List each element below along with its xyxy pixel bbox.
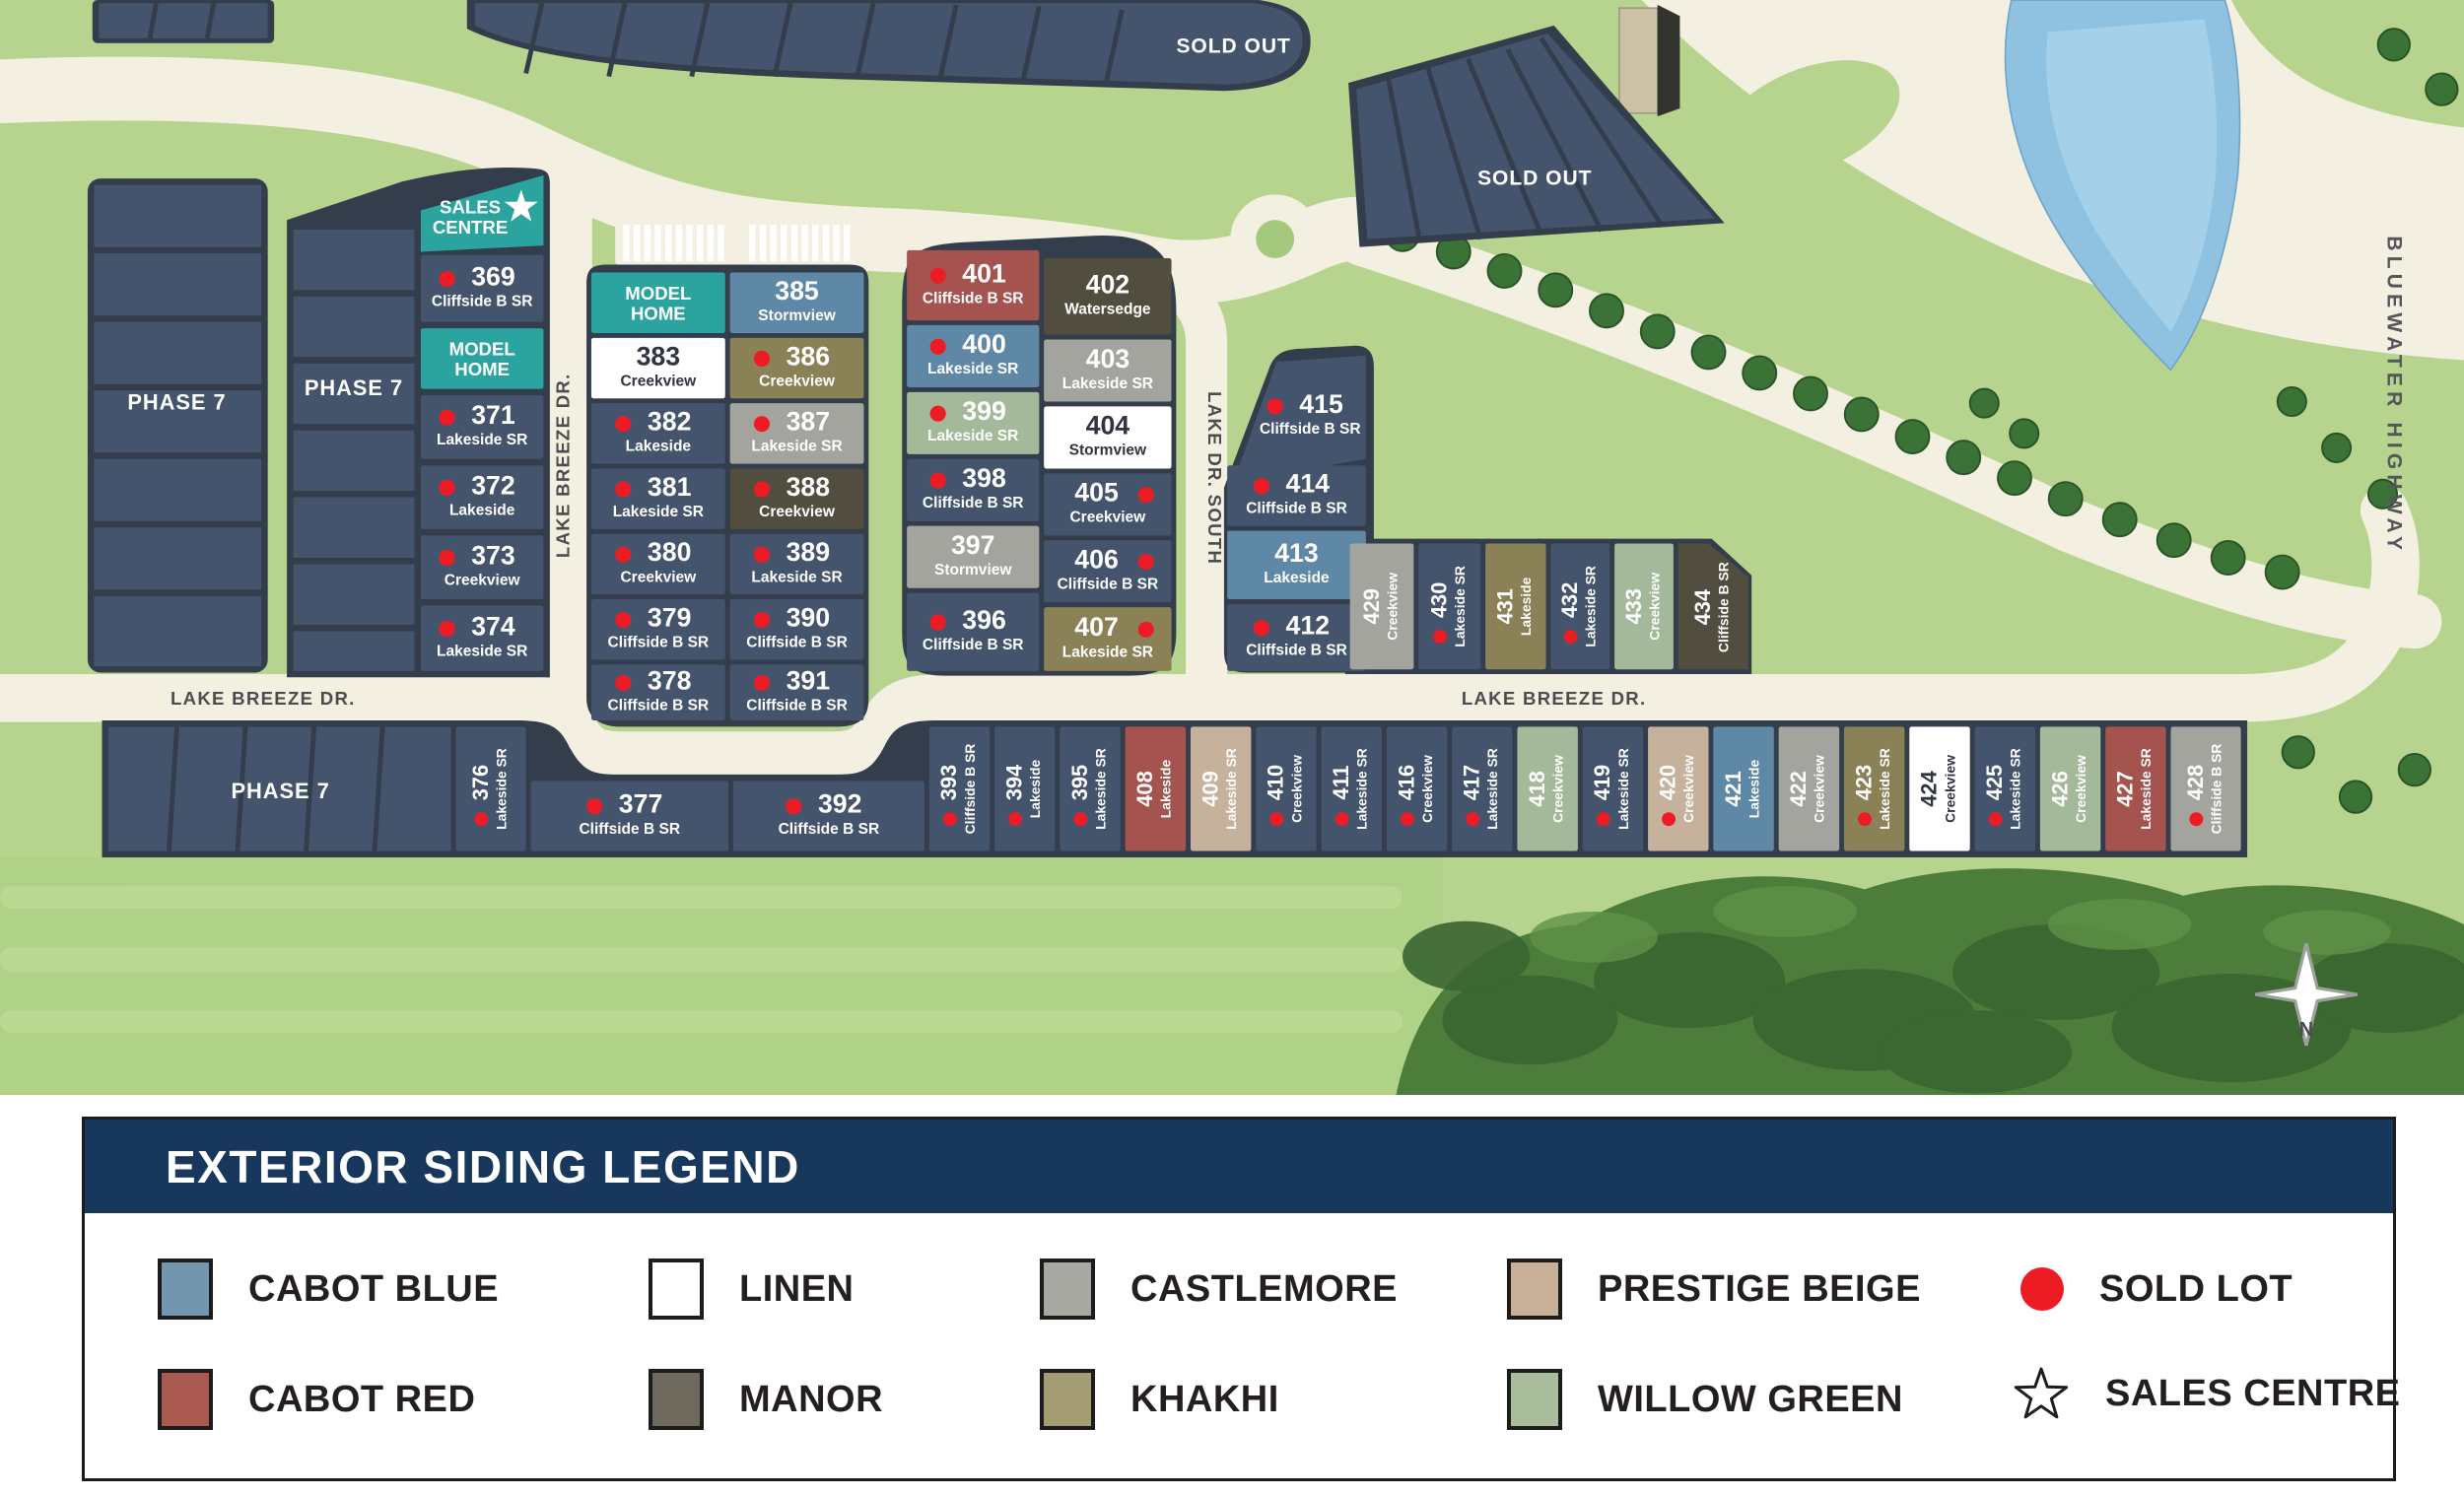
- lot-number: 371: [471, 400, 515, 430]
- lot-number: 390: [787, 603, 831, 633]
- lot-model: Lakeside SR: [2008, 748, 2023, 830]
- phase7-label-left: PHASE 7: [127, 390, 226, 415]
- lot-number: 422: [1786, 771, 1811, 806]
- lot-model: Stormview: [758, 307, 836, 324]
- lot-number: 378: [648, 665, 692, 695]
- lot-model: Lakeside SR: [613, 504, 704, 520]
- lot-model: Lakeside: [1264, 570, 1330, 586]
- lot-number: 373: [471, 540, 515, 570]
- special-label-line1: MODEL: [449, 339, 515, 360]
- sold-dot: [2189, 812, 2203, 826]
- lot-model: Lakeside SR: [1223, 748, 1239, 830]
- lot-number: 425: [1982, 765, 2007, 800]
- lot-374[interactable]: 374Lakeside SR: [421, 606, 544, 671]
- legend-label: WILLOW GREEN: [1598, 1379, 1903, 1421]
- lot-model: Creekview: [1288, 755, 1304, 823]
- lot-number: 429: [1359, 588, 1384, 624]
- cabot-blue-swatch: [158, 1259, 213, 1320]
- special-label-line1: MODEL: [625, 283, 691, 304]
- lot-model: Lakeside SR: [1877, 748, 1892, 830]
- legend-label: MANOR: [739, 1379, 883, 1421]
- lot-number: 428: [2183, 765, 2208, 800]
- lot-393[interactable]: 393Cliffside B SR: [929, 726, 990, 851]
- lot-369[interactable]: 369Cliffside B SR: [421, 255, 544, 322]
- lot-392[interactable]: 392Cliffside B SR: [733, 781, 924, 851]
- lot-model: Creekview: [759, 373, 836, 389]
- sold-dot: [1008, 812, 1022, 826]
- lot-number: 395: [1067, 765, 1092, 800]
- sold-dot: [440, 410, 455, 426]
- roundabout: [1230, 194, 1320, 284]
- lot-model: Cliffside B SR: [1260, 421, 1361, 438]
- lot-373[interactable]: 373Creekview: [421, 535, 544, 599]
- lot-model: Lakeside SR: [751, 439, 842, 455]
- sold-dot: [586, 798, 602, 814]
- lot-396[interactable]: 396Cliffside B SR: [907, 593, 1039, 671]
- legend-item-linen: LINEN: [649, 1257, 855, 1322]
- manor-swatch: [649, 1369, 704, 1430]
- sold-dot: [1254, 478, 1269, 494]
- willow-green-swatch: [1507, 1369, 1562, 1430]
- lot-model: Cliffside B SR: [579, 821, 680, 838]
- sold-dot: [1267, 398, 1283, 414]
- lot-model: Cliffside B SR: [779, 821, 880, 838]
- lot-model: Creekview: [620, 373, 697, 389]
- legend-title: EXTERIOR SIDING LEGEND: [85, 1120, 2393, 1213]
- lot-number: 409: [1198, 771, 1222, 806]
- lot-390[interactable]: 390Cliffside B SR: [730, 599, 864, 659]
- lot-389[interactable]: 389Lakeside SR: [730, 534, 864, 594]
- sold-dot: [1138, 622, 1154, 638]
- lot-number: 398: [962, 463, 1006, 493]
- sold-dot: [1269, 812, 1283, 826]
- sold-dot: [1858, 812, 1872, 826]
- sold-dot: [754, 416, 770, 432]
- lot-model: Watersedge: [1064, 302, 1151, 318]
- lot-model: Cliffside B SR: [1246, 501, 1347, 517]
- lot-number: 420: [1656, 765, 1680, 800]
- lot-number: 401: [962, 258, 1006, 288]
- lot-422[interactable]: 422Creekview: [1779, 726, 1839, 851]
- lot-408[interactable]: 408Lakeside: [1126, 726, 1186, 851]
- special-label-line2: HOME: [454, 359, 510, 379]
- exterior-siding-legend: EXTERIOR SIDING LEGEND CABOT BLUE CABOT …: [82, 1117, 2396, 1481]
- lot-model: Cliffside B SR: [1058, 577, 1159, 593]
- lot-model: Lakeside: [1158, 759, 1174, 818]
- sold-dot: [930, 472, 946, 488]
- sold-dot: [1662, 812, 1676, 826]
- sold-dot: [754, 547, 770, 563]
- sold-dot: [1433, 630, 1447, 644]
- lot-model: Creekview: [1942, 755, 1957, 823]
- lot-number: 383: [637, 341, 681, 371]
- lot-number: 411: [1329, 765, 1353, 799]
- lot-419[interactable]: 419Lakeside SR: [1583, 726, 1643, 851]
- sold-dot: [943, 812, 957, 826]
- sold-dot: [1989, 812, 2003, 826]
- lot-379[interactable]: 379Cliffside B SR: [591, 599, 725, 659]
- lot-number: 385: [775, 276, 819, 306]
- legend-item-cabot-red: CABOT RED: [158, 1367, 475, 1432]
- lot-number: 427: [2113, 771, 2138, 806]
- sold-dot: [930, 406, 946, 422]
- legend-item-castlemore: CASTLEMORE: [1040, 1257, 1398, 1322]
- map-model-home[interactable]: MODELHOME: [421, 328, 544, 388]
- lot-model: Creekview: [620, 569, 697, 585]
- lot-number: 392: [818, 789, 862, 819]
- lot-number: 372: [471, 470, 515, 500]
- linen-swatch: [649, 1259, 704, 1320]
- lot-371[interactable]: 371Lakeside SR: [421, 395, 544, 459]
- lot-412[interactable]: 412Cliffside B SR: [1227, 604, 1366, 671]
- sold-dot: [754, 612, 770, 628]
- legend-label: SALES CENTRE: [2105, 1373, 2400, 1415]
- sold-dot: [615, 675, 631, 691]
- lot-number: 382: [648, 407, 692, 437]
- lot-425[interactable]: 425Lakeside SR: [1975, 726, 2035, 851]
- lot-414[interactable]: 414Cliffside B SR: [1227, 465, 1366, 525]
- lot-number: 374: [471, 611, 515, 641]
- lot-model: Lakeside SR: [1583, 566, 1599, 647]
- lot-model: Lakeside SR: [1092, 748, 1108, 830]
- lot-number: 376: [468, 765, 493, 800]
- lot-number: 415: [1299, 389, 1343, 419]
- sold-dot: [440, 621, 455, 637]
- street-label-lake-breeze-vertical: LAKE BREEZE DR.: [552, 373, 573, 558]
- lot-model: Creekview: [1812, 755, 1827, 823]
- lot-424[interactable]: 424Creekview: [1909, 726, 1969, 851]
- lot-model: Lakeside SR: [1062, 375, 1153, 392]
- sold-out-label-1: SOLD OUT: [1176, 34, 1290, 57]
- lot-model: Lakeside SR: [751, 569, 842, 585]
- lot-404[interactable]: 404Stormview: [1044, 406, 1171, 468]
- lot-395[interactable]: 395Lakeside SR: [1060, 726, 1120, 851]
- lot-number: 404: [1086, 411, 1130, 441]
- lot-model: Lakeside SR: [927, 428, 1018, 444]
- lot-number: 419: [1590, 765, 1614, 800]
- lot-number: 430: [1426, 582, 1451, 618]
- site-plan-page: SOLD OUT SOLD OUT SALESCE: [0, 0, 2464, 1497]
- lot-model: Cliffside B SR: [923, 495, 1024, 511]
- lot-model: Cliffside B SR: [923, 290, 1024, 306]
- sold-dot: [1254, 620, 1269, 636]
- lot-model: Lakeside SR: [1354, 748, 1370, 830]
- lot-number: 403: [1086, 344, 1130, 374]
- lot-model: Lakeside SR: [437, 643, 527, 659]
- field: [0, 857, 1442, 1095]
- lot-number: 396: [962, 605, 1006, 635]
- cabot-red-swatch: [158, 1369, 213, 1430]
- lot-number: 393: [936, 765, 961, 800]
- lot-405[interactable]: 405Creekview: [1044, 473, 1171, 535]
- lot-model: Creekview: [1384, 573, 1400, 641]
- lot-413[interactable]: 413Lakeside: [1227, 531, 1366, 600]
- lot-number: 388: [787, 472, 831, 502]
- lot-382[interactable]: 382Lakeside: [591, 403, 725, 463]
- lot-433[interactable]: 433Creekview: [1614, 543, 1674, 669]
- lot-number: 400: [962, 329, 1006, 359]
- lot-model: Cliffside B SR: [432, 294, 533, 310]
- lot-model: Cliffside B SR: [962, 744, 978, 835]
- lot-number: 397: [951, 530, 995, 560]
- lot-number: 387: [787, 407, 831, 437]
- sold-dot: [754, 675, 770, 691]
- lot-381[interactable]: 381Lakeside SR: [591, 468, 725, 528]
- building: [1619, 5, 1679, 116]
- legend-label: KHAKHI: [1130, 1379, 1279, 1421]
- north-label: N: [2299, 1019, 2314, 1041]
- legend-label: CABOT BLUE: [248, 1268, 499, 1311]
- lot-386[interactable]: 386Creekview: [730, 338, 864, 398]
- lot-number: 407: [1074, 612, 1119, 642]
- phase7-label-mid: PHASE 7: [305, 375, 403, 400]
- lot-number: 431: [1493, 588, 1518, 624]
- lot-number: 369: [471, 261, 515, 291]
- lot-number: 379: [648, 603, 692, 633]
- map-model-home[interactable]: MODELHOME: [591, 273, 725, 333]
- lot-387[interactable]: 387Lakeside SR: [730, 403, 864, 463]
- lot-model: Lakeside SR: [927, 361, 1018, 377]
- lot-number: 386: [787, 341, 831, 371]
- lot-model: Lakeside SR: [1062, 644, 1153, 660]
- lot-model: Lakeside: [449, 502, 515, 518]
- lot-model: Lakeside SR: [1452, 566, 1468, 647]
- lot-model: Lakeside: [1745, 759, 1761, 818]
- sold-dot: [615, 612, 631, 628]
- lot-410[interactable]: 410Creekview: [1256, 726, 1316, 851]
- lot-number: 412: [1286, 611, 1331, 641]
- lot-model: Stormview: [1069, 442, 1147, 459]
- lot-model: Cliffside B SR: [608, 697, 710, 714]
- lot-model: Creekview: [445, 573, 521, 589]
- sold-dot: [930, 339, 946, 355]
- sold-dot: [1564, 630, 1578, 644]
- lot-402[interactable]: 402Watersedge: [1044, 258, 1171, 335]
- lot-400[interactable]: 400Lakeside SR: [907, 325, 1039, 387]
- lot-388[interactable]: 388Creekview: [730, 468, 864, 528]
- street-label-bluewater-highway: BLUEWATER HIGHWAY: [2382, 236, 2405, 555]
- lot-number: 424: [1917, 770, 1942, 806]
- lot-model: Creekview: [1069, 510, 1146, 526]
- sold-dot: [615, 481, 631, 497]
- lot-number: 423: [1851, 765, 1876, 800]
- lot-403[interactable]: 403Lakeside SR: [1044, 339, 1171, 401]
- lot-409[interactable]: 409Lakeside SR: [1191, 726, 1251, 851]
- sold-dot: [1335, 812, 1349, 826]
- legend-item-khakhi: KHAKHI: [1040, 1367, 1279, 1432]
- legend-item-sold-lot: SOLD LOT: [2020, 1257, 2293, 1322]
- lot-number: 391: [787, 665, 831, 695]
- lot-model: Creekview: [1646, 573, 1662, 641]
- sold-dot: [754, 351, 770, 367]
- lot-423[interactable]: 423Lakeside SR: [1844, 726, 1904, 851]
- lot-377[interactable]: 377Cliffside B SR: [530, 781, 728, 851]
- sold-out-label-2: SOLD OUT: [1477, 168, 1592, 190]
- lot-398[interactable]: 398Cliffside B SR: [907, 459, 1039, 521]
- legend-label: CABOT RED: [248, 1379, 475, 1421]
- lot-394[interactable]: 394Lakeside: [994, 726, 1055, 851]
- sold-dot: [930, 614, 946, 630]
- lot-number: 377: [619, 789, 663, 819]
- lot-416[interactable]: 416Creekview: [1387, 726, 1447, 851]
- lot-model: Cliffside B SR: [1716, 562, 1732, 652]
- sold-dot: [1597, 812, 1610, 826]
- lot-model: Lakeside: [1518, 577, 1534, 636]
- special-label-line2: HOME: [631, 303, 686, 323]
- lot-model: Cliffside B SR: [746, 697, 848, 714]
- lot-model: Lakeside: [1027, 759, 1043, 818]
- lot-number: 432: [1557, 582, 1582, 618]
- phase7-label-bottom: PHASE 7: [232, 779, 330, 803]
- lot-number: 413: [1274, 538, 1319, 568]
- sold-dot: [754, 481, 770, 497]
- lot-421[interactable]: 421Lakeside: [1713, 726, 1773, 851]
- lot-model: Cliffside B SR: [608, 635, 710, 651]
- lot-model: Creekview: [1419, 755, 1435, 823]
- lot-number: 418: [1525, 771, 1549, 806]
- prestige-beige-swatch: [1507, 1259, 1562, 1320]
- legend-item-cabot-blue: CABOT BLUE: [158, 1257, 499, 1322]
- street-label-lake-breeze-west: LAKE BREEZE DR.: [171, 688, 356, 709]
- lot-model: Creekview: [1680, 755, 1696, 823]
- lot-number: 416: [1394, 765, 1418, 800]
- sold-dot: [930, 268, 946, 284]
- lot-418[interactable]: 418Creekview: [1517, 726, 1577, 851]
- lot-number: 410: [1264, 765, 1288, 800]
- sold-dot: [474, 812, 488, 826]
- lot-model: Creekview: [2073, 755, 2088, 823]
- lot-401[interactable]: 401Cliffside B SR: [907, 250, 1039, 320]
- lot-model: Stormview: [934, 562, 1012, 578]
- lot-431[interactable]: 431Lakeside: [1485, 543, 1545, 669]
- legend-label: PRESTIGE BEIGE: [1598, 1268, 1921, 1311]
- legend-label: SOLD LOT: [2099, 1268, 2293, 1311]
- lot-420[interactable]: 420Creekview: [1648, 726, 1708, 851]
- special-label-line2: CENTRE: [433, 217, 508, 238]
- site-plan-map: SOLD OUT SOLD OUT SALESCE: [0, 0, 2464, 1095]
- parking-lot: [615, 220, 855, 264]
- legend-label: LINEN: [739, 1268, 855, 1311]
- lot-426[interactable]: 426Creekview: [2040, 726, 2100, 851]
- khakhi-swatch: [1040, 1369, 1095, 1430]
- lot-model: Cliffside B SR: [923, 637, 1024, 653]
- sold-dot: [440, 550, 455, 566]
- sales-centre-star-icon: [2013, 1366, 2070, 1421]
- lot-number: 433: [1621, 588, 1646, 624]
- lot-number: 402: [1086, 270, 1130, 300]
- lot-number: 405: [1074, 478, 1119, 508]
- lot-376[interactable]: 376Lakeside SR: [455, 726, 525, 851]
- lot-number: 421: [1721, 771, 1745, 806]
- lot-number: 417: [1460, 765, 1484, 800]
- lot-number: 381: [648, 472, 692, 502]
- lot-427[interactable]: 427Lakeside SR: [2105, 726, 2165, 851]
- sold-lot-dot: [2020, 1267, 2064, 1311]
- lot-model: Lakeside SR: [493, 748, 509, 830]
- lot-428[interactable]: 428Cliffside B SR: [2170, 726, 2240, 851]
- lot-model: Cliffside B SR: [1246, 643, 1347, 659]
- legend-label: CASTLEMORE: [1130, 1268, 1398, 1311]
- street-label-lake-dr-south: LAKE DR. SOUTH: [1204, 391, 1225, 565]
- lot-model: Lakeside SR: [1484, 748, 1500, 830]
- sold-dot: [440, 271, 455, 287]
- lot-430[interactable]: 430Lakeside SR: [1418, 543, 1480, 669]
- castlemore-swatch: [1040, 1259, 1095, 1320]
- lot-380[interactable]: 380Creekview: [591, 534, 725, 594]
- legend-item-sales-centre: SALES CENTRE: [2013, 1361, 2400, 1426]
- lot-number: 389: [787, 537, 831, 567]
- lot-number: 434: [1690, 588, 1715, 625]
- lot-number: 394: [1002, 764, 1027, 800]
- sold-dot: [440, 480, 455, 496]
- lot-model: Creekview: [759, 504, 836, 520]
- lot-number: 406: [1074, 545, 1119, 575]
- lot-385[interactable]: 385Stormview: [730, 273, 864, 333]
- sold-dot: [1138, 487, 1154, 503]
- lot-model: Lakeside SR: [437, 432, 527, 448]
- lot-372[interactable]: 372Lakeside: [421, 465, 544, 529]
- lot-417[interactable]: 417Lakeside SR: [1452, 726, 1512, 851]
- lot-399[interactable]: 399Lakeside SR: [907, 392, 1039, 454]
- lot-model: Creekview: [1550, 755, 1566, 823]
- legend-item-willow-green: WILLOW GREEN: [1507, 1367, 1903, 1432]
- lot-number: 408: [1132, 771, 1157, 806]
- lot-model: Lakeside SR: [2138, 748, 2154, 830]
- legend-item-prestige-beige: PRESTIGE BEIGE: [1507, 1257, 1921, 1322]
- lot-391[interactable]: 391Cliffside B SR: [730, 664, 864, 720]
- sold-dot: [615, 416, 631, 432]
- lot-number: 399: [962, 396, 1006, 426]
- lot-model: Cliffside B SR: [746, 635, 848, 651]
- lot-397[interactable]: 397Stormview: [907, 526, 1039, 588]
- lot-number: 426: [2047, 771, 2072, 806]
- sold-dot: [1073, 812, 1087, 826]
- sold-dot: [786, 798, 801, 814]
- sold-dot: [1401, 812, 1414, 826]
- lot-number: 380: [648, 537, 692, 567]
- lot-406[interactable]: 406Cliffside B SR: [1044, 540, 1171, 602]
- special-label-line1: SALES: [440, 197, 501, 218]
- lot-432[interactable]: 432Lakeside SR: [1550, 543, 1609, 669]
- sold-dot: [1466, 812, 1479, 826]
- lot-number: 414: [1286, 469, 1331, 499]
- lot-model: Lakeside SR: [1615, 748, 1631, 830]
- sold-dot: [615, 547, 631, 563]
- lot-407[interactable]: 407Lakeside SR: [1044, 607, 1171, 671]
- lot-411[interactable]: 411Lakeside SR: [1322, 726, 1382, 851]
- sold-dot: [1138, 554, 1154, 570]
- legend-item-manor: MANOR: [649, 1367, 883, 1432]
- lot-383[interactable]: 383Creekview: [591, 338, 725, 398]
- lot-model: Cliffside B SR: [2208, 744, 2224, 835]
- lot-378[interactable]: 378Cliffside B SR: [591, 664, 725, 720]
- street-label-lake-breeze-east: LAKE BREEZE DR.: [1462, 688, 1647, 709]
- lot-model: Lakeside: [626, 439, 692, 455]
- lot-429[interactable]: 429Creekview: [1350, 543, 1414, 669]
